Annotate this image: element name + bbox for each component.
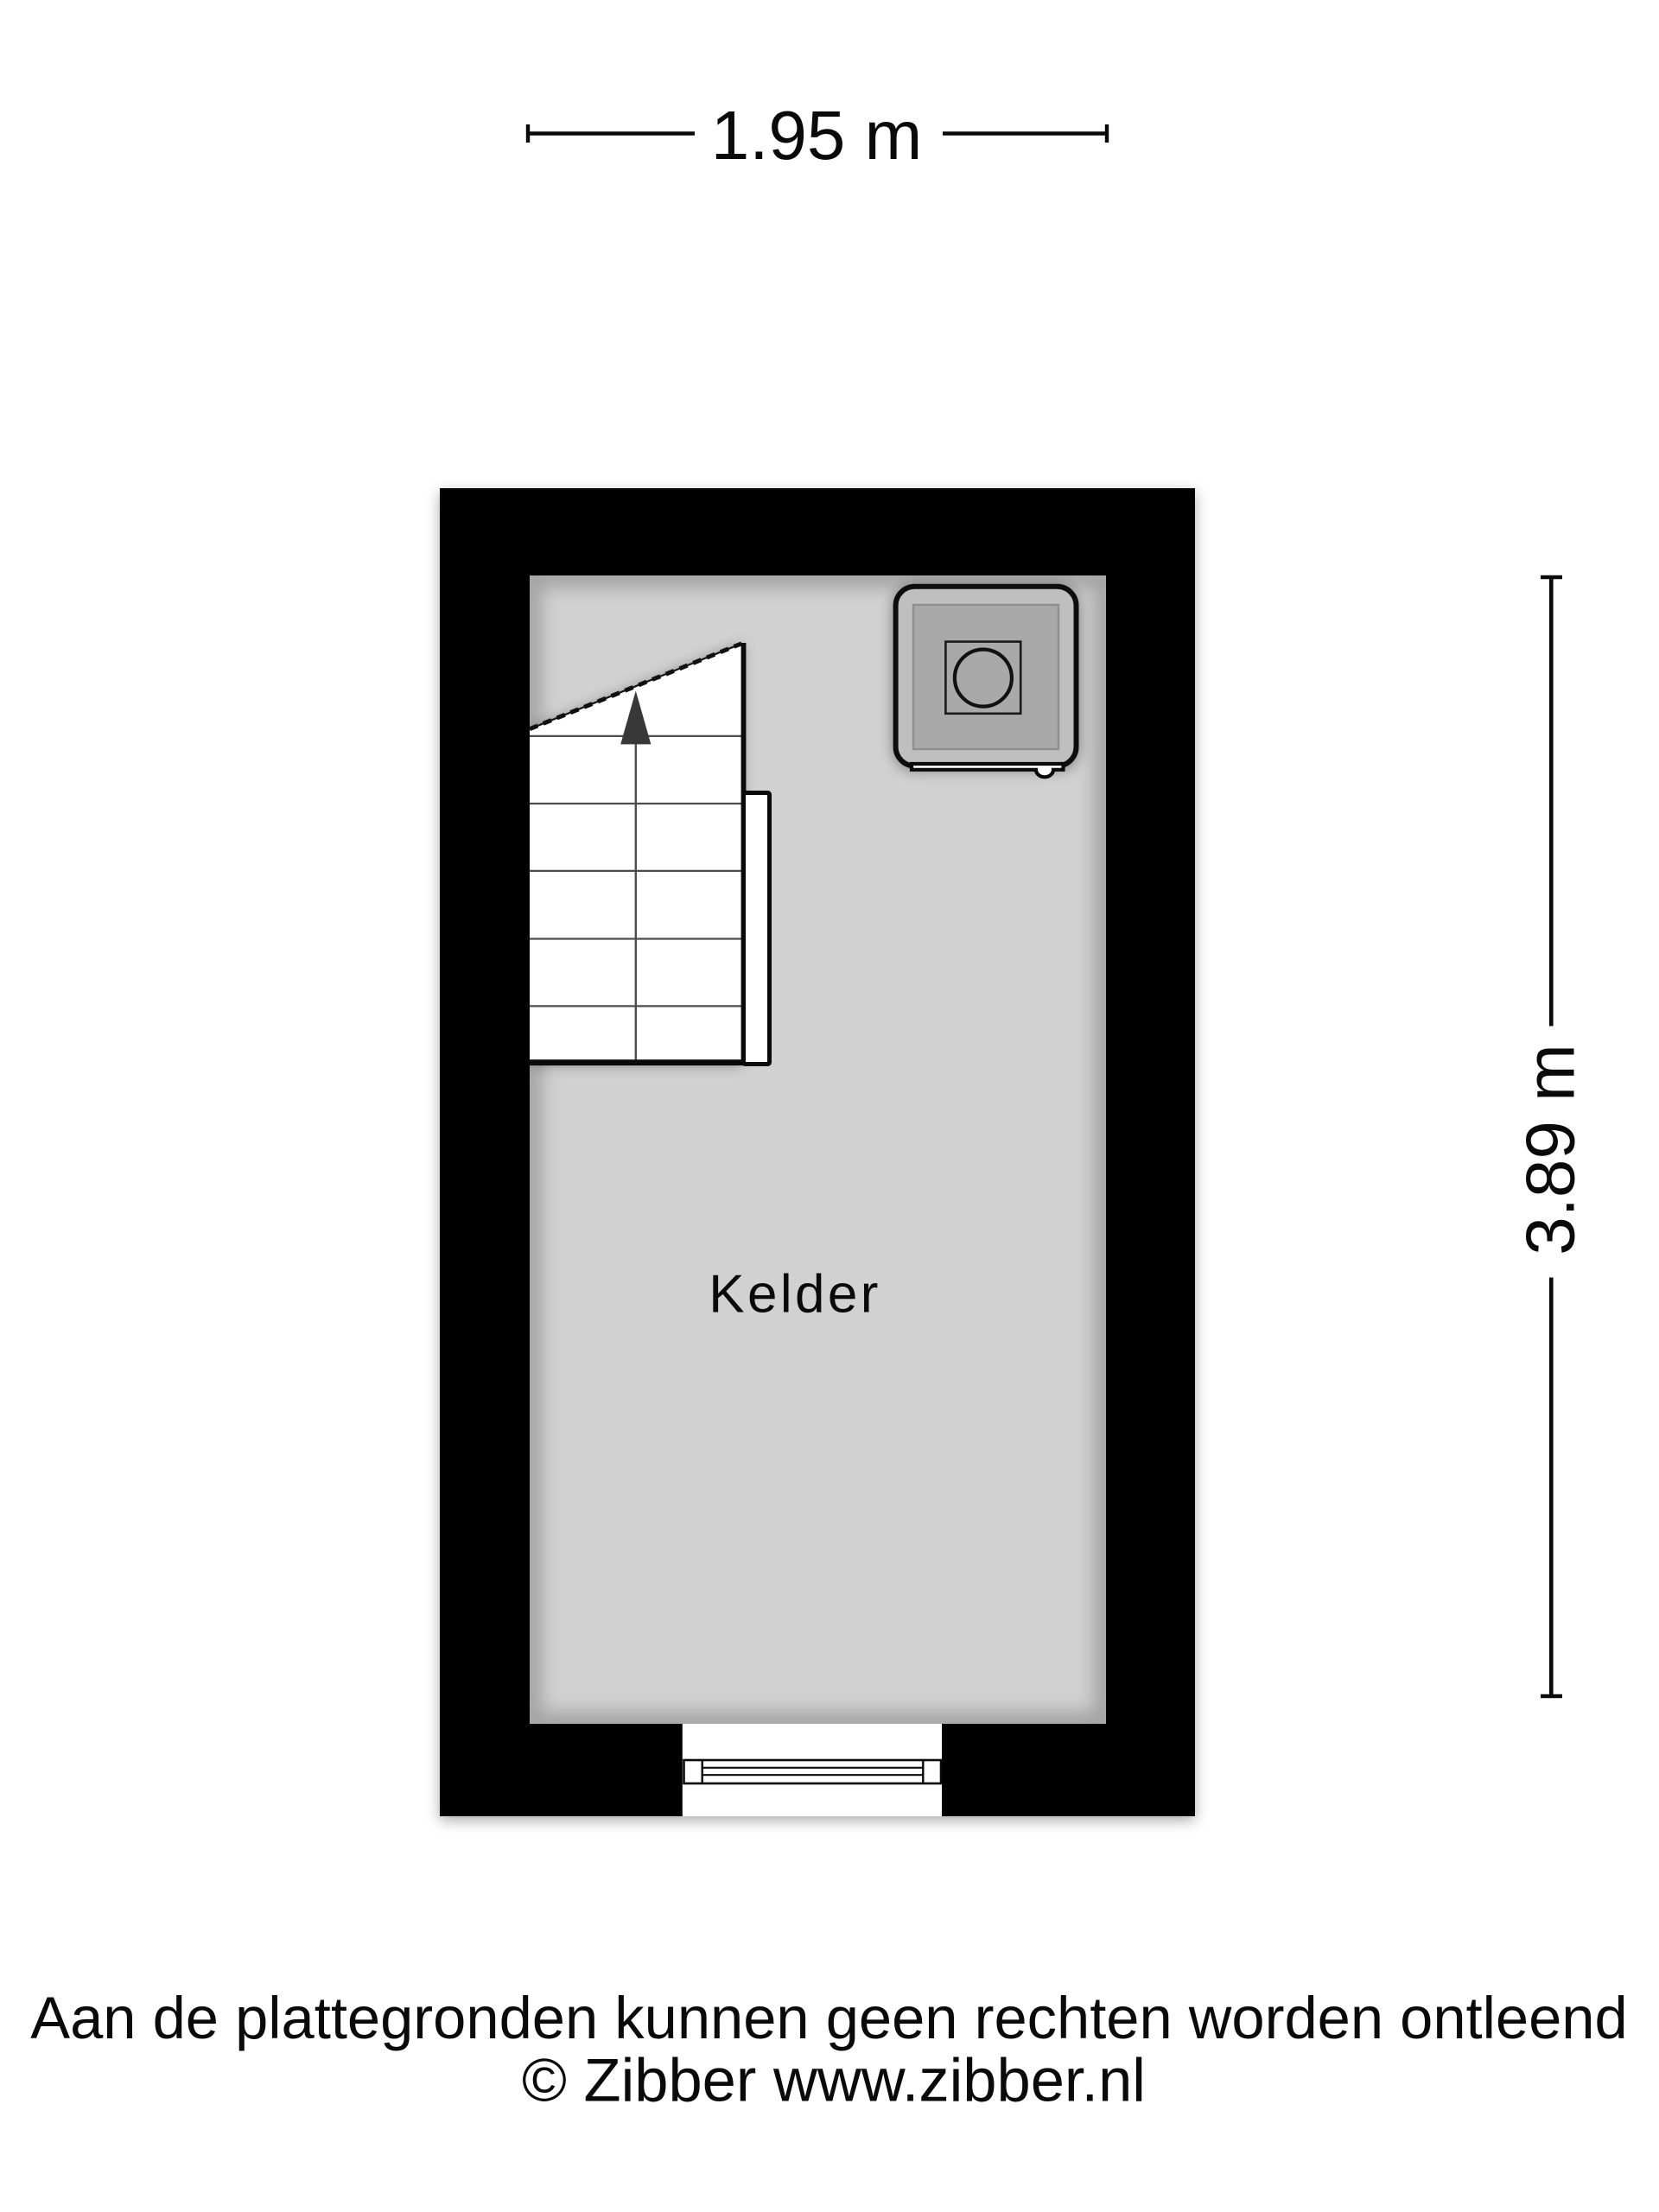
svg-text:© Zibber www.zibber.nl: © Zibber www.zibber.nl [522, 2046, 1146, 2114]
svg-text:Kelder: Kelder [709, 1264, 881, 1324]
svg-text:3.89 m: 3.89 m [1512, 1044, 1589, 1255]
svg-text:1.95 m: 1.95 m [711, 97, 923, 174]
svg-text:Aan de plattegronden kunnen ge: Aan de plattegronden kunnen geen rechten… [30, 1985, 1627, 2051]
